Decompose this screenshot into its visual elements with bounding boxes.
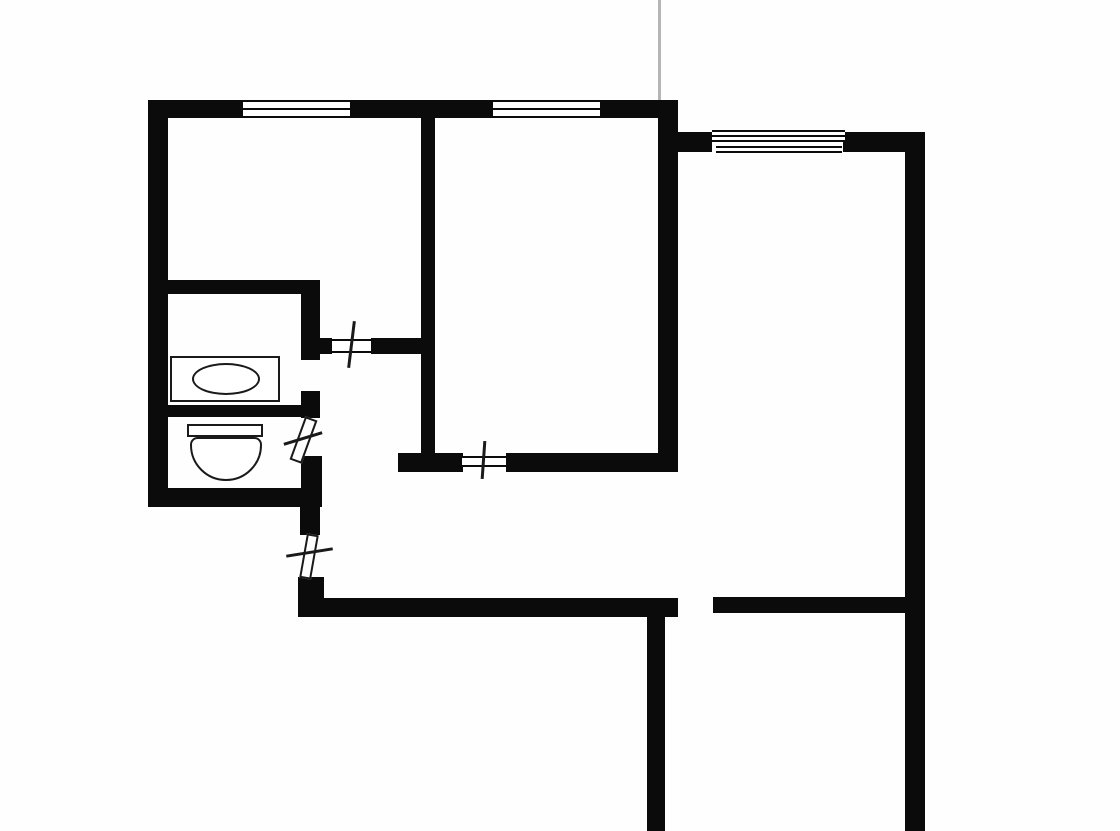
- window-room1: [243, 100, 350, 118]
- bottomright-room-top-wall: [713, 597, 905, 613]
- toilet-bowl: [190, 437, 262, 481]
- bottomright-room-left-wall: [647, 598, 665, 831]
- entry-corner-wall: [298, 577, 324, 617]
- bathroom-right-stub: [301, 391, 320, 418]
- middleroom-right-wall: [658, 100, 678, 472]
- hall-left-wall-upper: [300, 505, 320, 535]
- left-outer-wall: [148, 100, 168, 507]
- top-wall-mid: [350, 100, 493, 118]
- toilet-tank: [187, 424, 263, 437]
- section-cut-line: [658, 0, 661, 100]
- window-room3-lower: [716, 140, 842, 153]
- bath-toilet-divider-wall: [148, 405, 318, 417]
- floor-plan-canvas: [0, 0, 1120, 831]
- bathtub-basin: [192, 363, 260, 395]
- room1-door-wall-right: [371, 338, 422, 354]
- middleroom-bottom-wall-right: [506, 453, 667, 472]
- right-outer-wall: [905, 132, 925, 831]
- bathroom-top-wall: [148, 280, 318, 294]
- middleroom-left-wall: [421, 117, 435, 470]
- toilet-bottom-wall: [148, 488, 322, 507]
- entry-door-leaf: [299, 533, 319, 579]
- window-room2: [493, 100, 600, 118]
- middleroom-bottom-wall-left: [398, 453, 463, 472]
- hall-bottom-wall: [322, 598, 678, 617]
- rightsection-top-wall-left: [678, 132, 712, 152]
